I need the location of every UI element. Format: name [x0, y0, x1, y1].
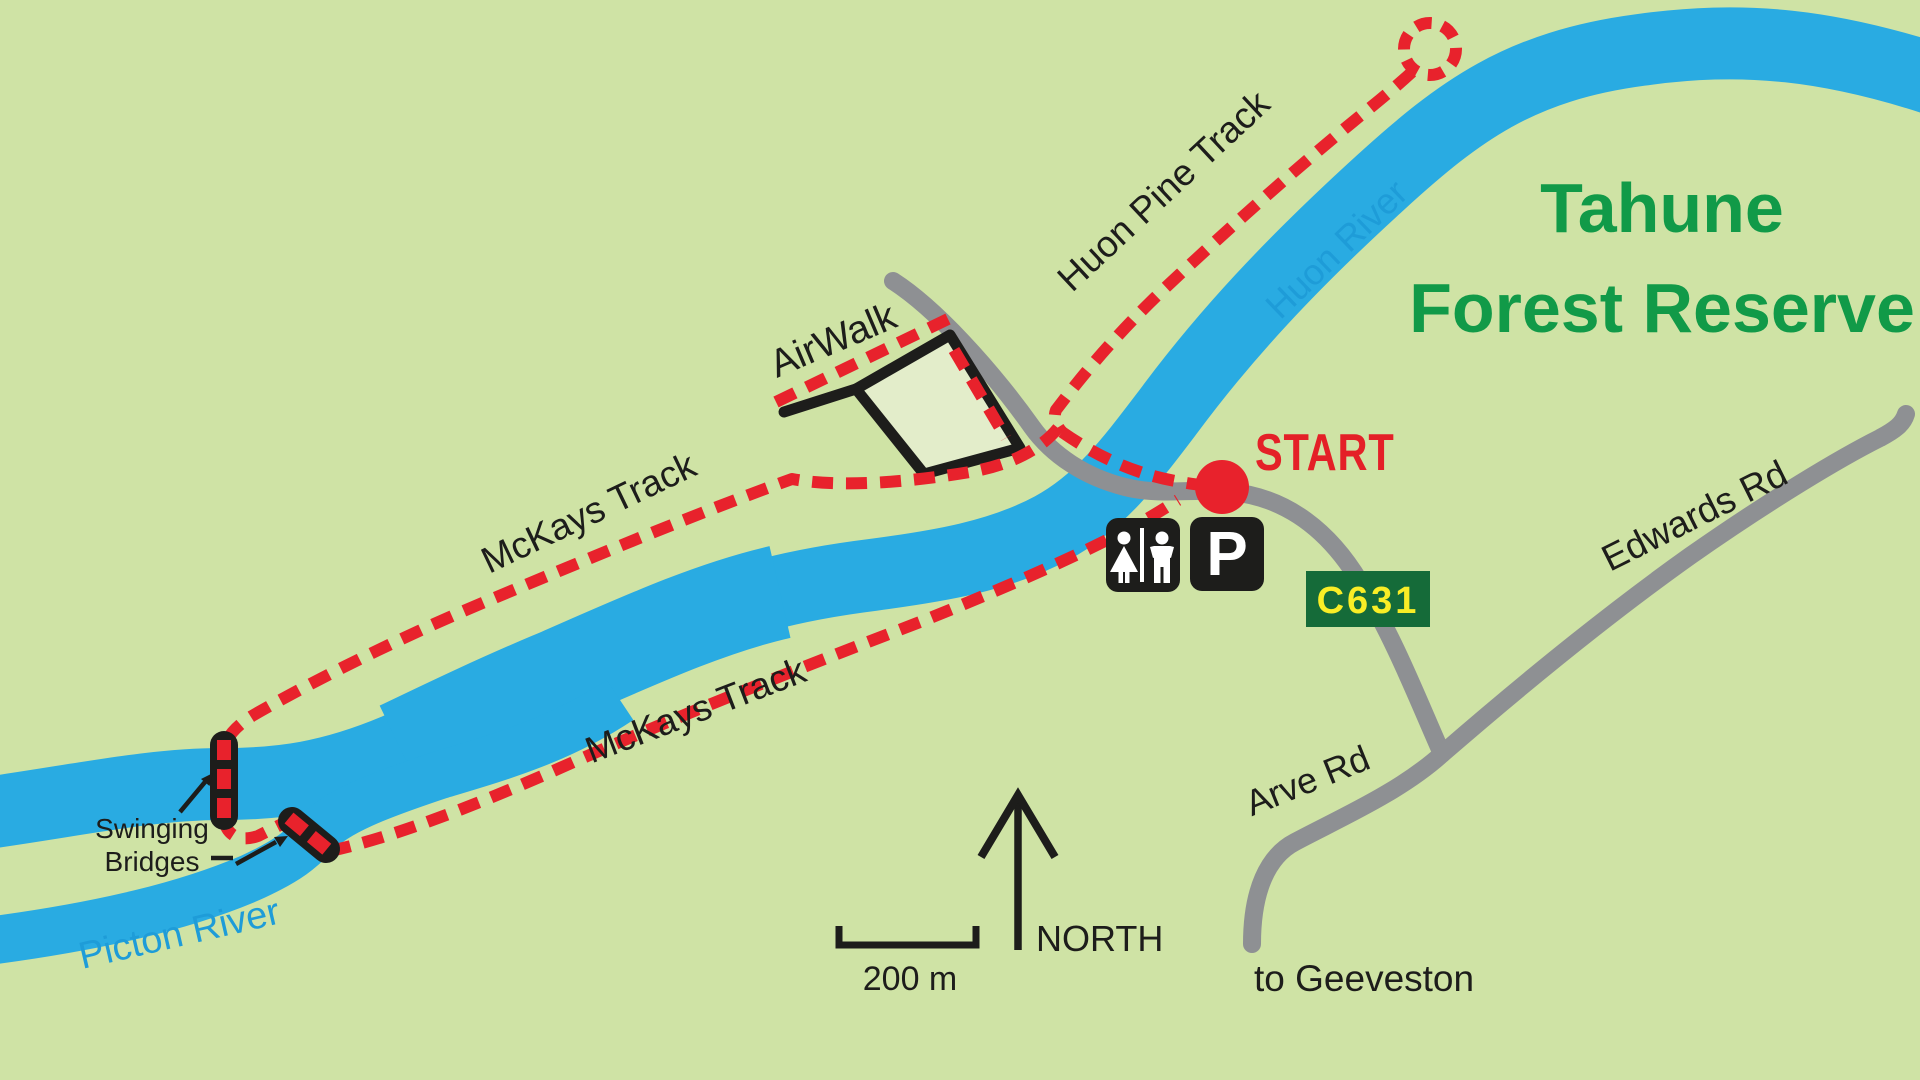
start-marker [1195, 460, 1249, 514]
tahune-forest-reserve-map: P C631 Tahune Forest Reserve Huon Pine T… [0, 0, 1920, 1080]
c631-road-sign: C631 [1306, 571, 1430, 627]
north-label: NORTH [1036, 918, 1163, 959]
toilets-icon [1106, 518, 1180, 592]
swinging-bridges-label-line2: Bridges [105, 846, 200, 877]
parking-symbol-letter: P [1206, 520, 1247, 589]
swinging-bridges-label-line1: Swinging [95, 813, 209, 844]
c631-sign-text: C631 [1317, 580, 1420, 622]
scale-bar-label: 200 m [863, 960, 958, 998]
map-title-line2: Forest Reserve [1409, 269, 1915, 347]
map-canvas: P C631 Tahune Forest Reserve Huon Pine T… [0, 0, 1920, 1080]
to-geeveston-label: to Geeveston [1254, 958, 1474, 999]
map-title-line1: Tahune [1540, 169, 1784, 247]
parking-icon: P [1190, 517, 1264, 591]
start-label: START [1255, 423, 1395, 482]
